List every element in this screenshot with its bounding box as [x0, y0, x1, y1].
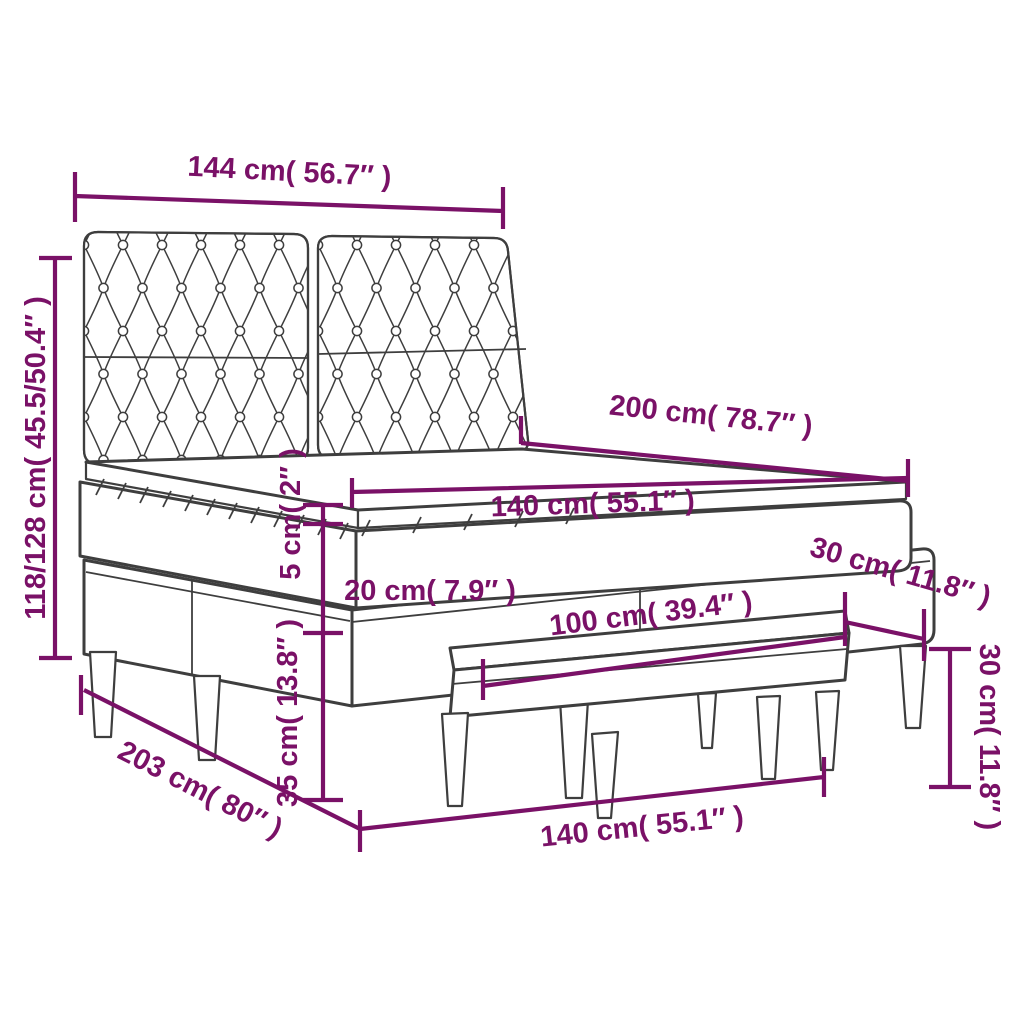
tuft-pattern-right [310, 220, 540, 470]
dim-frame-length: 203 cm( 80″ ) [81, 675, 360, 852]
headboard-left-panel [70, 220, 320, 480]
dim-headboard-width-label: 144 cm( 56.7″ ) [187, 151, 393, 194]
bench-leg [757, 696, 780, 779]
headboard [70, 220, 540, 480]
dim-base-height-label: 35 cm( 13.8″ ) [272, 619, 304, 807]
dim-bench-height-label: 30 cm( 11.8″ ) [973, 644, 1005, 830]
bed-leg [560, 700, 588, 798]
headboard-left-seam [84, 357, 308, 358]
dim-topper-height-label: 5 cm( 2″ ) [275, 448, 307, 580]
headboard-right-panel [310, 220, 540, 470]
dim-headboard-width: 144 cm( 56.7″ ) [75, 151, 503, 229]
diagram-canvas: 144 cm( 56.7″ ) 118/128 cm( 45.5/50.4″ )… [0, 0, 1024, 1024]
bench-leg [816, 691, 839, 770]
dim-overall-height: 118/128 cm( 45.5/50.4″ ) [20, 258, 72, 658]
bench [442, 611, 849, 818]
dim-overall-height-label: 118/128 cm( 45.5/50.4″ ) [20, 296, 52, 619]
dim-frame-width: 140 cm( 55.1″ ) [360, 757, 824, 854]
bench-leg [592, 732, 618, 818]
dim-mattress-height-label: 20 cm( 7.9″ ) [344, 575, 516, 607]
tuft-pattern-left [70, 220, 320, 480]
bench-leg [698, 693, 716, 748]
dim-frame-width-label: 140 cm( 55.1″ ) [539, 800, 745, 853]
dim-mattress-length-label: 200 cm( 78.7″ ) [608, 389, 814, 442]
bench-leg [442, 713, 468, 806]
dim-bench-height: 30 cm( 11.8″ ) [929, 644, 1005, 830]
